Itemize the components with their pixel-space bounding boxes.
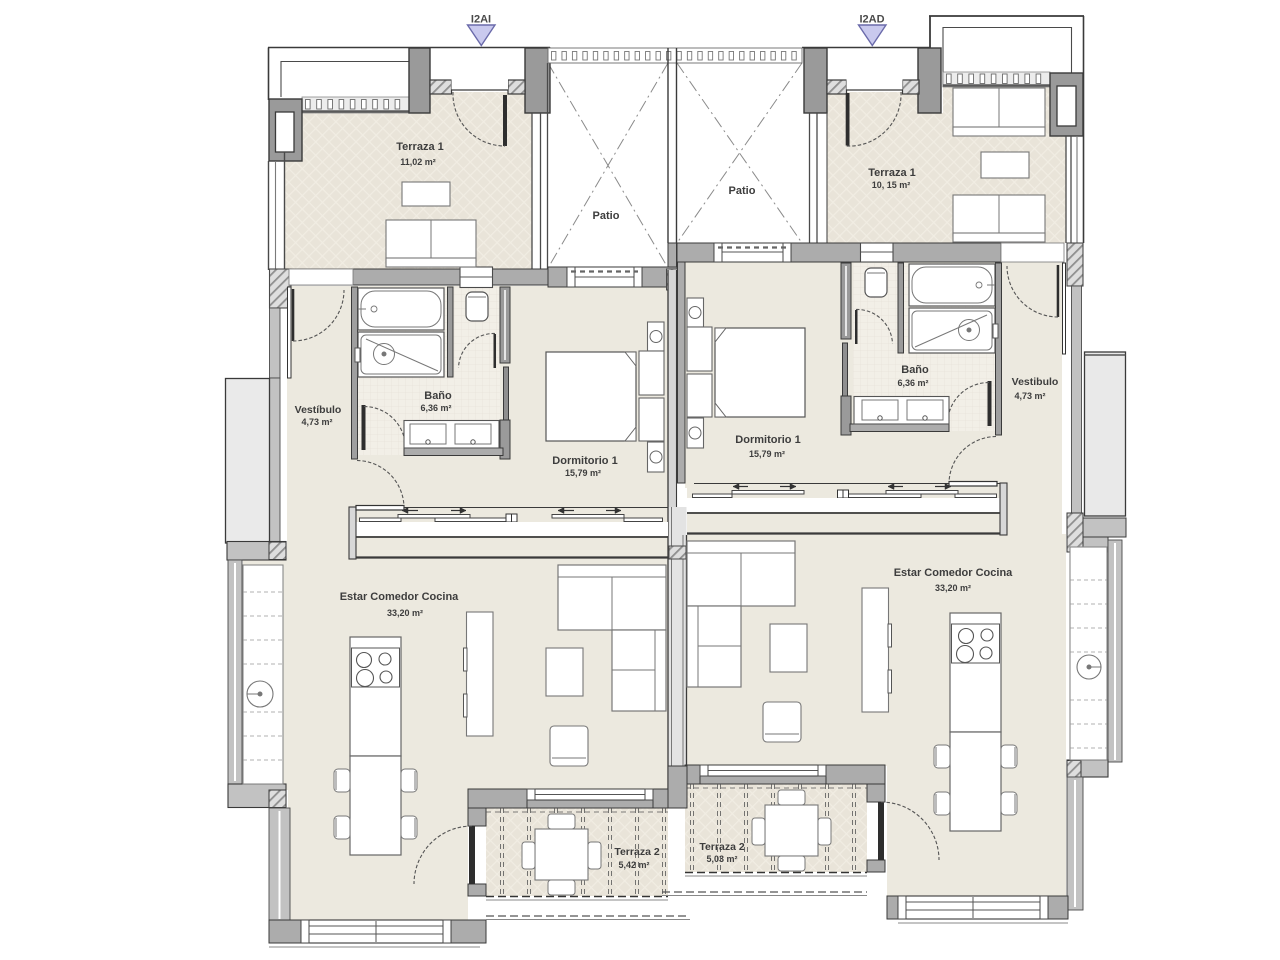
svg-text:15,79 m²: 15,79 m² xyxy=(565,468,601,478)
svg-text:Terraza 1: Terraza 1 xyxy=(868,167,916,179)
svg-text:4,73 m²: 4,73 m² xyxy=(301,417,332,427)
svg-text:Patio: Patio xyxy=(729,185,756,197)
svg-text:Estar Comedor Cocina: Estar Comedor Cocina xyxy=(340,591,459,603)
svg-text:5,42 m²: 5,42 m² xyxy=(618,860,649,870)
svg-text:Dormitorio 1: Dormitorio 1 xyxy=(735,434,800,446)
svg-text:10, 15 m²: 10, 15 m² xyxy=(872,180,911,190)
svg-text:6,36 m²: 6,36 m² xyxy=(897,378,928,388)
svg-text:4,73 m²: 4,73 m² xyxy=(1014,391,1045,401)
svg-text:Terraza 2: Terraza 2 xyxy=(614,846,659,858)
svg-text:11,02 m²: 11,02 m² xyxy=(400,157,436,167)
svg-text:Baño: Baño xyxy=(424,390,452,402)
svg-text:Baño: Baño xyxy=(901,364,929,376)
svg-text:Terraza 2: Terraza 2 xyxy=(699,841,744,853)
svg-text:Patio: Patio xyxy=(593,210,620,222)
svg-text:I2AD: I2AD xyxy=(859,14,884,26)
svg-text:Dormitorio 1: Dormitorio 1 xyxy=(552,455,617,467)
svg-text:I2AI: I2AI xyxy=(471,14,491,26)
svg-text:Vestibulo: Vestibulo xyxy=(1012,376,1059,388)
svg-text:5,03 m²: 5,03 m² xyxy=(706,854,737,864)
svg-text:Vestíbulo: Vestíbulo xyxy=(295,404,342,416)
svg-text:33,20 m²: 33,20 m² xyxy=(935,583,971,593)
svg-text:Estar Comedor Cocina: Estar Comedor Cocina xyxy=(894,567,1013,579)
svg-text:33,20 m²: 33,20 m² xyxy=(387,608,423,618)
svg-text:15,79 m²: 15,79 m² xyxy=(749,449,785,459)
svg-text:6,36 m²: 6,36 m² xyxy=(420,403,451,413)
svg-text:Terraza 1: Terraza 1 xyxy=(396,141,444,153)
